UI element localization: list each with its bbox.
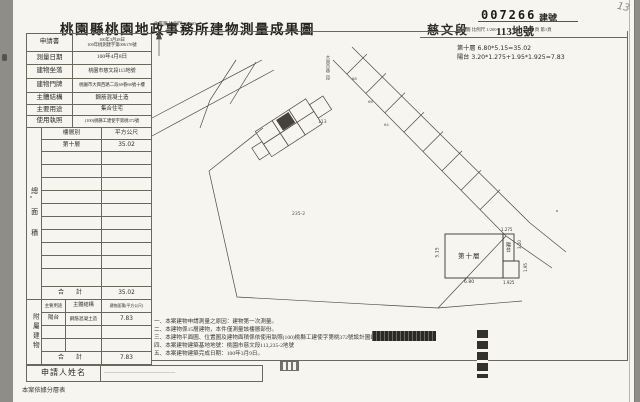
redaction-stamp <box>372 331 436 341</box>
dim-balcony-bottom: 1.925 <box>503 280 514 285</box>
dim-width: 6.80 <box>464 280 474 285</box>
vertical-seal-stamp <box>477 330 488 378</box>
lot-number-113: 113 <box>318 120 327 125</box>
strip-lot-number: 64 <box>384 122 389 127</box>
note-line-4: 四、本案建物建築基地地號：桃園市慈文段113,235-2地號 <box>154 341 484 349</box>
floor-area-formula: 第十層 6.80*5.15=35.02 <box>457 43 531 52</box>
dim-balcony-top: 1.275 <box>501 227 512 232</box>
balcony-area-formula: 陽台 3.20*1.275+1.95*1.925=7.83 <box>457 52 565 61</box>
small-stamp-box <box>280 361 299 371</box>
note-line-5: 五、本案建物建築完成日期：100年3月9日。 <box>154 349 484 357</box>
note-line-1: 一、本案建物申請測量之原因：建物第一次測量。 <box>154 317 484 325</box>
dim-balcony-right-lower: 1.95 <box>523 263 528 272</box>
strip-lot-number: 66 <box>368 99 373 104</box>
strip-lot-number: 68 <box>352 76 357 81</box>
dim-balcony-right-upper: 3.20 <box>517 240 522 249</box>
dim-height: 5.15 <box>436 247 441 257</box>
plan-floor-label: 第十層 <box>458 250 481 260</box>
lot-number-235-2: 235-2 <box>292 212 305 217</box>
balcony-label: 陽台 <box>504 242 511 252</box>
road-name-label: 大興西路二段 <box>325 55 331 80</box>
scanned-survey-document: 桃園縣桃園地政事務所建物測量成果圖 慈文段 113地號 007266 建號 平面… <box>0 0 640 402</box>
